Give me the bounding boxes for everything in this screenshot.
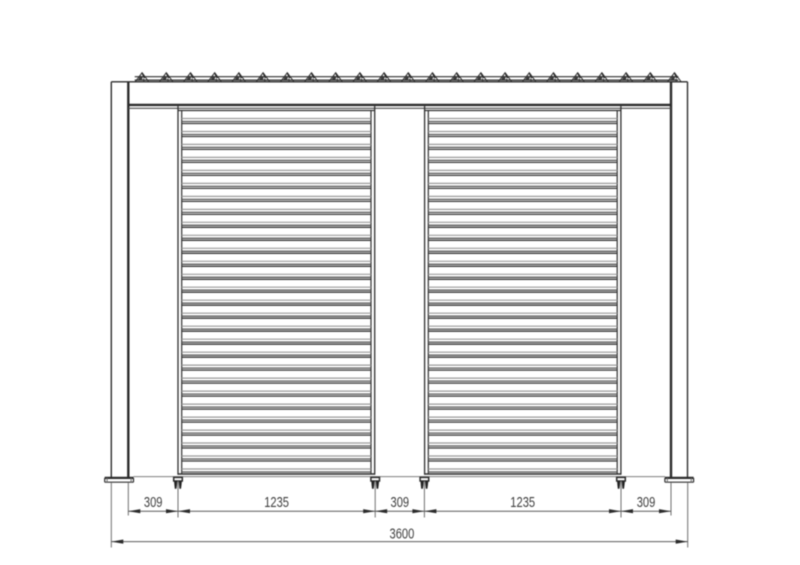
svg-text:1235: 1235 — [264, 494, 289, 511]
svg-text:3600: 3600 — [389, 525, 414, 542]
svg-text:1235: 1235 — [510, 494, 535, 511]
svg-text:309: 309 — [390, 494, 409, 511]
svg-text:309: 309 — [144, 494, 163, 511]
svg-text:309: 309 — [637, 494, 656, 511]
